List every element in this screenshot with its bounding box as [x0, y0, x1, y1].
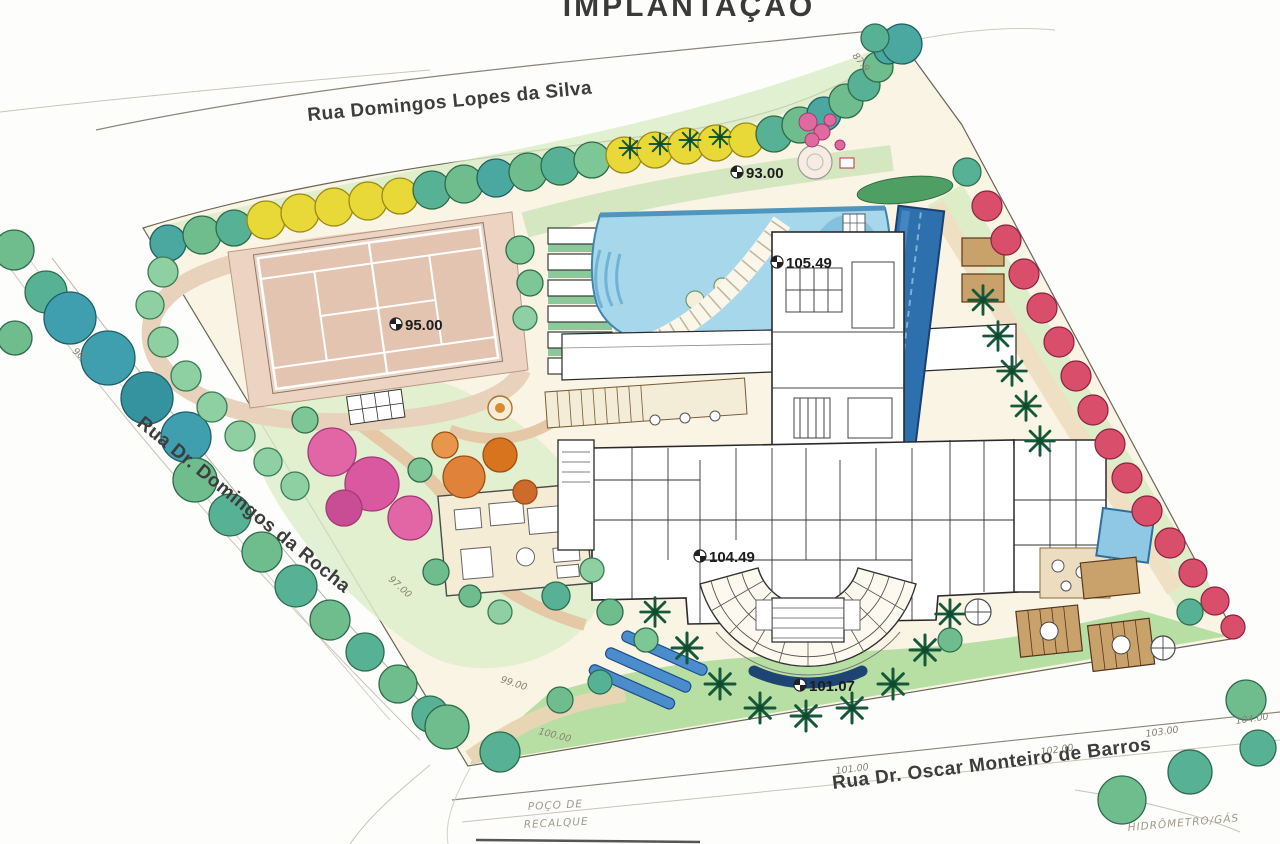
utility-box [840, 158, 854, 168]
right-cabana [1080, 557, 1139, 599]
round-plaza [798, 145, 832, 179]
svg-text:93.00: 93.00 [746, 165, 784, 182]
stage-steps [772, 598, 844, 642]
svg-text:95.00: 95.00 [405, 317, 443, 334]
umbrella-table [1151, 636, 1175, 660]
umbrella-table [965, 599, 991, 625]
site-plan-drawing: IMPLANTAÇÃO Rua Domingos Lopes da Silva … [0, 0, 1280, 844]
svg-text:101.07: 101.07 [809, 678, 855, 695]
site-plan-canvas: IMPLANTAÇÃO Rua Domingos Lopes da Silva … [0, 0, 1280, 844]
plan-title: IMPLANTAÇÃO [563, 0, 815, 23]
left-annex [558, 440, 594, 550]
svg-text:105.49: 105.49 [786, 255, 832, 272]
svg-text:104.49: 104.49 [709, 549, 755, 566]
